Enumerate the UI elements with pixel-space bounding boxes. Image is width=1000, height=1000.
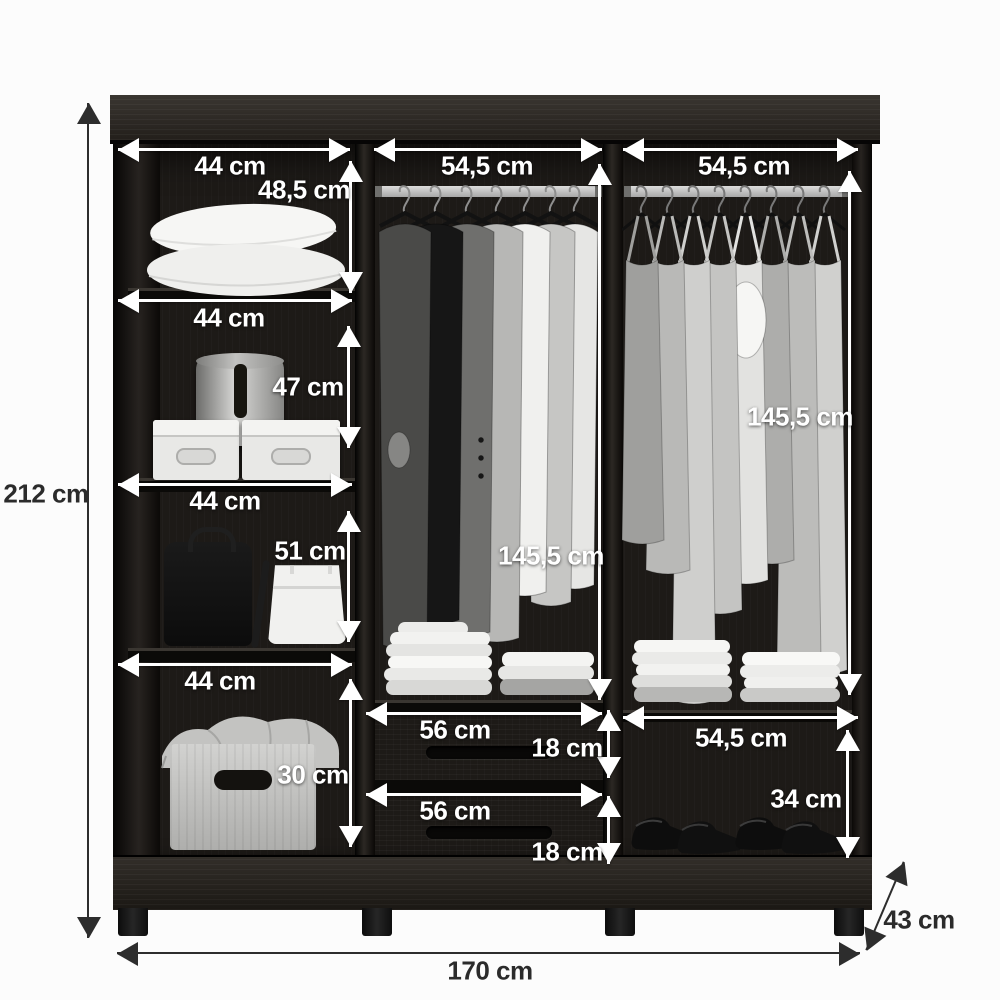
handbag xyxy=(268,562,346,644)
dim-right-width-label: 54,5 cm xyxy=(698,151,790,182)
pillows xyxy=(140,196,355,298)
dim-drawer1-width-label: 56 cm xyxy=(419,715,490,746)
wardrobe-foot xyxy=(362,908,392,936)
dim-right-bottom-shelf-width-arrow xyxy=(623,716,858,719)
wardrobe-top-panel xyxy=(110,95,880,144)
dim-left-comp2-height-arrow xyxy=(347,326,350,448)
dim-middle-width-label: 54,5 cm xyxy=(441,151,533,182)
dim-right-hanging-height-label: 145,5 cm xyxy=(747,402,853,433)
drawer-gap xyxy=(375,780,603,794)
dim-left-comp1-height-label: 48,5 cm xyxy=(258,175,350,206)
dim-left-comp4-height-label: 30 cm xyxy=(277,760,348,791)
dim-overall-height-arrow xyxy=(87,103,89,938)
hanger-hooks xyxy=(637,186,830,214)
storage-box-right xyxy=(242,420,340,480)
dim-overall-width-label: 170 cm xyxy=(447,956,532,987)
wardrobe-dimension-diagram: 44 cm 44 cm 44 cm 44 cm 48,5 cm 47 cm 51… xyxy=(0,0,1000,1000)
dim-drawer2-height-label: 18 cm xyxy=(531,837,602,868)
dim-left-comp4-height-arrow xyxy=(349,679,352,847)
dim-right-bottom-shelf-width-label: 54,5 cm xyxy=(695,723,787,754)
dim-overall-height-label: 212 cm xyxy=(3,479,88,510)
dim-right-hanging-height-arrow xyxy=(848,171,851,695)
dim-left-comp2-height-label: 47 cm xyxy=(272,372,343,403)
dim-left-shelf3-width-label: 44 cm xyxy=(189,486,260,517)
dim-drawer2-height-arrow xyxy=(607,796,610,864)
backpack xyxy=(164,542,252,646)
wardrobe-foot xyxy=(834,908,864,936)
dim-drawer1-height-arrow xyxy=(607,710,610,778)
left-shelf-3 xyxy=(128,648,355,662)
dim-shoe-compartment-height-arrow xyxy=(846,730,849,858)
storage-box-left xyxy=(153,420,239,480)
dim-middle-hanging-height-label: 145,5 cm xyxy=(498,541,604,572)
dim-drawer1-height-label: 18 cm xyxy=(531,733,602,764)
wardrobe-foot xyxy=(605,908,635,936)
dim-drawer2-width-label: 56 cm xyxy=(419,796,490,827)
base-panel xyxy=(113,855,872,910)
folded-clothes-middle xyxy=(376,612,602,707)
dim-left-comp3-height-arrow xyxy=(347,511,350,642)
dim-overall-width-arrow xyxy=(117,952,860,954)
dim-overall-depth-label: 43 cm xyxy=(883,905,954,936)
dim-left-comp3-height-label: 51 cm xyxy=(274,536,345,567)
shoe xyxy=(632,817,845,854)
dim-left-shelf1-width-label: 44 cm xyxy=(194,151,265,182)
hanger-shoulders xyxy=(380,213,598,226)
dim-left-shelf4-width-label: 44 cm xyxy=(184,666,255,697)
hanger-shoulders xyxy=(622,214,845,230)
hanger-hooks xyxy=(400,186,580,214)
right-side-panel xyxy=(852,138,872,868)
dim-middle-hanging-height-arrow xyxy=(598,164,601,700)
divider-left-middle xyxy=(355,138,375,868)
dim-shoe-compartment-height-label: 34 cm xyxy=(770,784,841,815)
dim-left-shelf2-width-label: 44 cm xyxy=(193,303,264,334)
folded-clothes-right xyxy=(626,628,848,712)
wardrobe-foot xyxy=(118,908,148,936)
middle-shelf xyxy=(375,700,603,712)
